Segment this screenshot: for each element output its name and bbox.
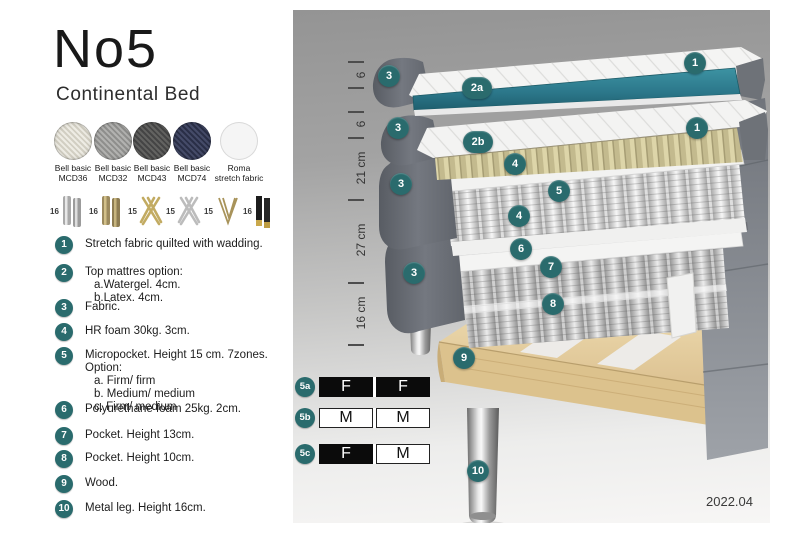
firmness-cell: M	[376, 444, 430, 464]
callout-7: 7	[540, 256, 562, 278]
callout-9: 9	[453, 347, 475, 369]
leg-option-cylinder-brass: 16	[89, 191, 122, 231]
leg-height-label: 16	[89, 207, 98, 216]
leg-cross-gold-icon	[139, 196, 163, 226]
fabric-swatch-roma: Romastretch fabric	[213, 122, 265, 183]
fabric-swatch-circle	[54, 122, 92, 160]
spec-line: Pocket. Height 10cm.	[85, 452, 194, 465]
spec-line: Micropocket. Height 15 cm. 7zones. Optio…	[85, 349, 305, 375]
spec-item-8: 8 Pocket. Height 10cm.	[55, 450, 305, 468]
page-title: No5	[53, 18, 158, 80]
leg-option-cylinder-black: 16	[243, 191, 272, 231]
spec-line: Fabric.	[85, 301, 120, 314]
callout-2b: 2b	[463, 131, 493, 153]
measurement-label-27cm: 27 cm	[354, 205, 368, 275]
spec-item-4: 4 HR foam 30kg. 3cm.	[55, 323, 305, 341]
leg-option-cylinder-silver: 16	[50, 191, 83, 231]
spec-item-3: 3 Fabric.	[55, 299, 305, 317]
firmness-row-5b: 5b M M	[295, 408, 430, 428]
callout-6: 6	[510, 238, 532, 260]
spec-line: Metal leg. Height 16cm.	[85, 502, 206, 515]
spec-line: b. Medium/ medium	[85, 388, 305, 401]
measurement-label-16cm: 16 cm	[354, 278, 368, 348]
leg-option-cross-silver: 15	[166, 191, 201, 231]
spec-line: Pocket. Height 13cm.	[85, 429, 194, 442]
spec-line: a. Firm/ firm	[85, 375, 305, 388]
callout-10: 10	[467, 460, 489, 482]
spec-number-badge: 10	[55, 500, 73, 518]
callout-3-topper2a: 3	[378, 65, 400, 87]
firmness-badge: 5c	[295, 444, 315, 464]
callout-8: 8	[542, 293, 564, 315]
spec-line: Polyurethane foam 25kg. 2cm.	[85, 403, 241, 416]
spec-line: Wood.	[85, 477, 118, 490]
spec-number-badge: 5	[55, 347, 73, 365]
spec-number-badge: 1	[55, 236, 73, 254]
firmness-cell: F	[319, 377, 373, 397]
box-corner-post	[667, 273, 696, 338]
fabric-swatch-mcd74: Bell basicMCD74	[169, 122, 215, 183]
spec-line: HR foam 30kg. 3cm.	[85, 325, 190, 338]
leg-option-hairpin-brass: 15	[204, 191, 241, 231]
callout-3-topper2b: 3	[387, 117, 409, 139]
callout-4-top: 4	[504, 153, 526, 175]
fabric-swatch-circle	[173, 122, 211, 160]
leg-height-label: 15	[166, 207, 175, 216]
fabric-swatch-circle	[220, 122, 258, 160]
leg-cylinder-silver-icon	[61, 194, 83, 228]
version-label: 2022.04	[706, 494, 766, 509]
leg-height-label: 16	[243, 207, 252, 216]
leg-cylinder-brass-icon	[100, 194, 122, 228]
spec-number-badge: 9	[55, 475, 73, 493]
firmness-cell: F	[376, 377, 430, 397]
leg-height-label: 16	[50, 207, 59, 216]
spec-number-badge: 6	[55, 401, 73, 419]
leg-option-cross-gold: 15	[128, 191, 163, 231]
spec-item-6: 6 Polyurethane foam 25kg. 2cm.	[55, 401, 305, 419]
spec-item-7: 7 Pocket. Height 13cm.	[55, 427, 305, 445]
spec-number-badge: 2	[55, 264, 73, 282]
spec-number-badge: 4	[55, 323, 73, 341]
leg-cylinder-black-icon	[254, 194, 272, 228]
firmness-row-5c: 5c F M	[295, 444, 430, 464]
bed-diagram-panel: 6 6 21 cm 27 cm 16 cm 3 2a 1 3 2b 1 4 5 …	[293, 10, 770, 523]
leg-hairpin-icon	[215, 196, 241, 226]
fabric-swatch-circle	[94, 122, 132, 160]
callout-1-top: 1	[684, 52, 706, 74]
firmness-badge: 5a	[295, 377, 315, 397]
spec-number-badge: 3	[55, 299, 73, 317]
measurement-label-21cm: 21 cm	[354, 133, 368, 203]
page-subtitle: Continental Bed	[56, 84, 200, 106]
lower-box	[385, 229, 743, 348]
spec-line: a.Watergel. 4cm.	[85, 279, 183, 292]
callout-2a: 2a	[462, 77, 492, 99]
leg-cross-silver-icon	[177, 196, 201, 226]
firmness-cell: F	[319, 444, 373, 464]
callout-3-mattress: 3	[390, 173, 412, 195]
spec-item-10: 10 Metal leg. Height 16cm.	[55, 500, 305, 518]
spec-number-badge: 8	[55, 450, 73, 468]
firmness-cell: M	[376, 408, 430, 428]
fabric-swatch-circle	[133, 122, 171, 160]
spec-item-9: 9 Wood.	[55, 475, 305, 493]
leg-height-label: 15	[204, 207, 213, 216]
callout-1-lower: 1	[686, 117, 708, 139]
spec-number-badge: 7	[55, 427, 73, 445]
spec-line: Stretch fabric quilted with wadding.	[85, 238, 263, 251]
firmness-row-5a: 5a F F	[295, 377, 430, 397]
leg-height-label: 15	[128, 207, 137, 216]
callout-4-bottom: 4	[508, 205, 530, 227]
firmness-cell: M	[319, 408, 373, 428]
callout-3-box: 3	[403, 262, 425, 284]
firmness-badge: 5b	[295, 408, 315, 428]
callout-5: 5	[548, 180, 570, 202]
spec-line: Top mattres option:	[85, 266, 183, 279]
spec-item-1: 1 Stretch fabric quilted with wadding.	[55, 236, 305, 254]
